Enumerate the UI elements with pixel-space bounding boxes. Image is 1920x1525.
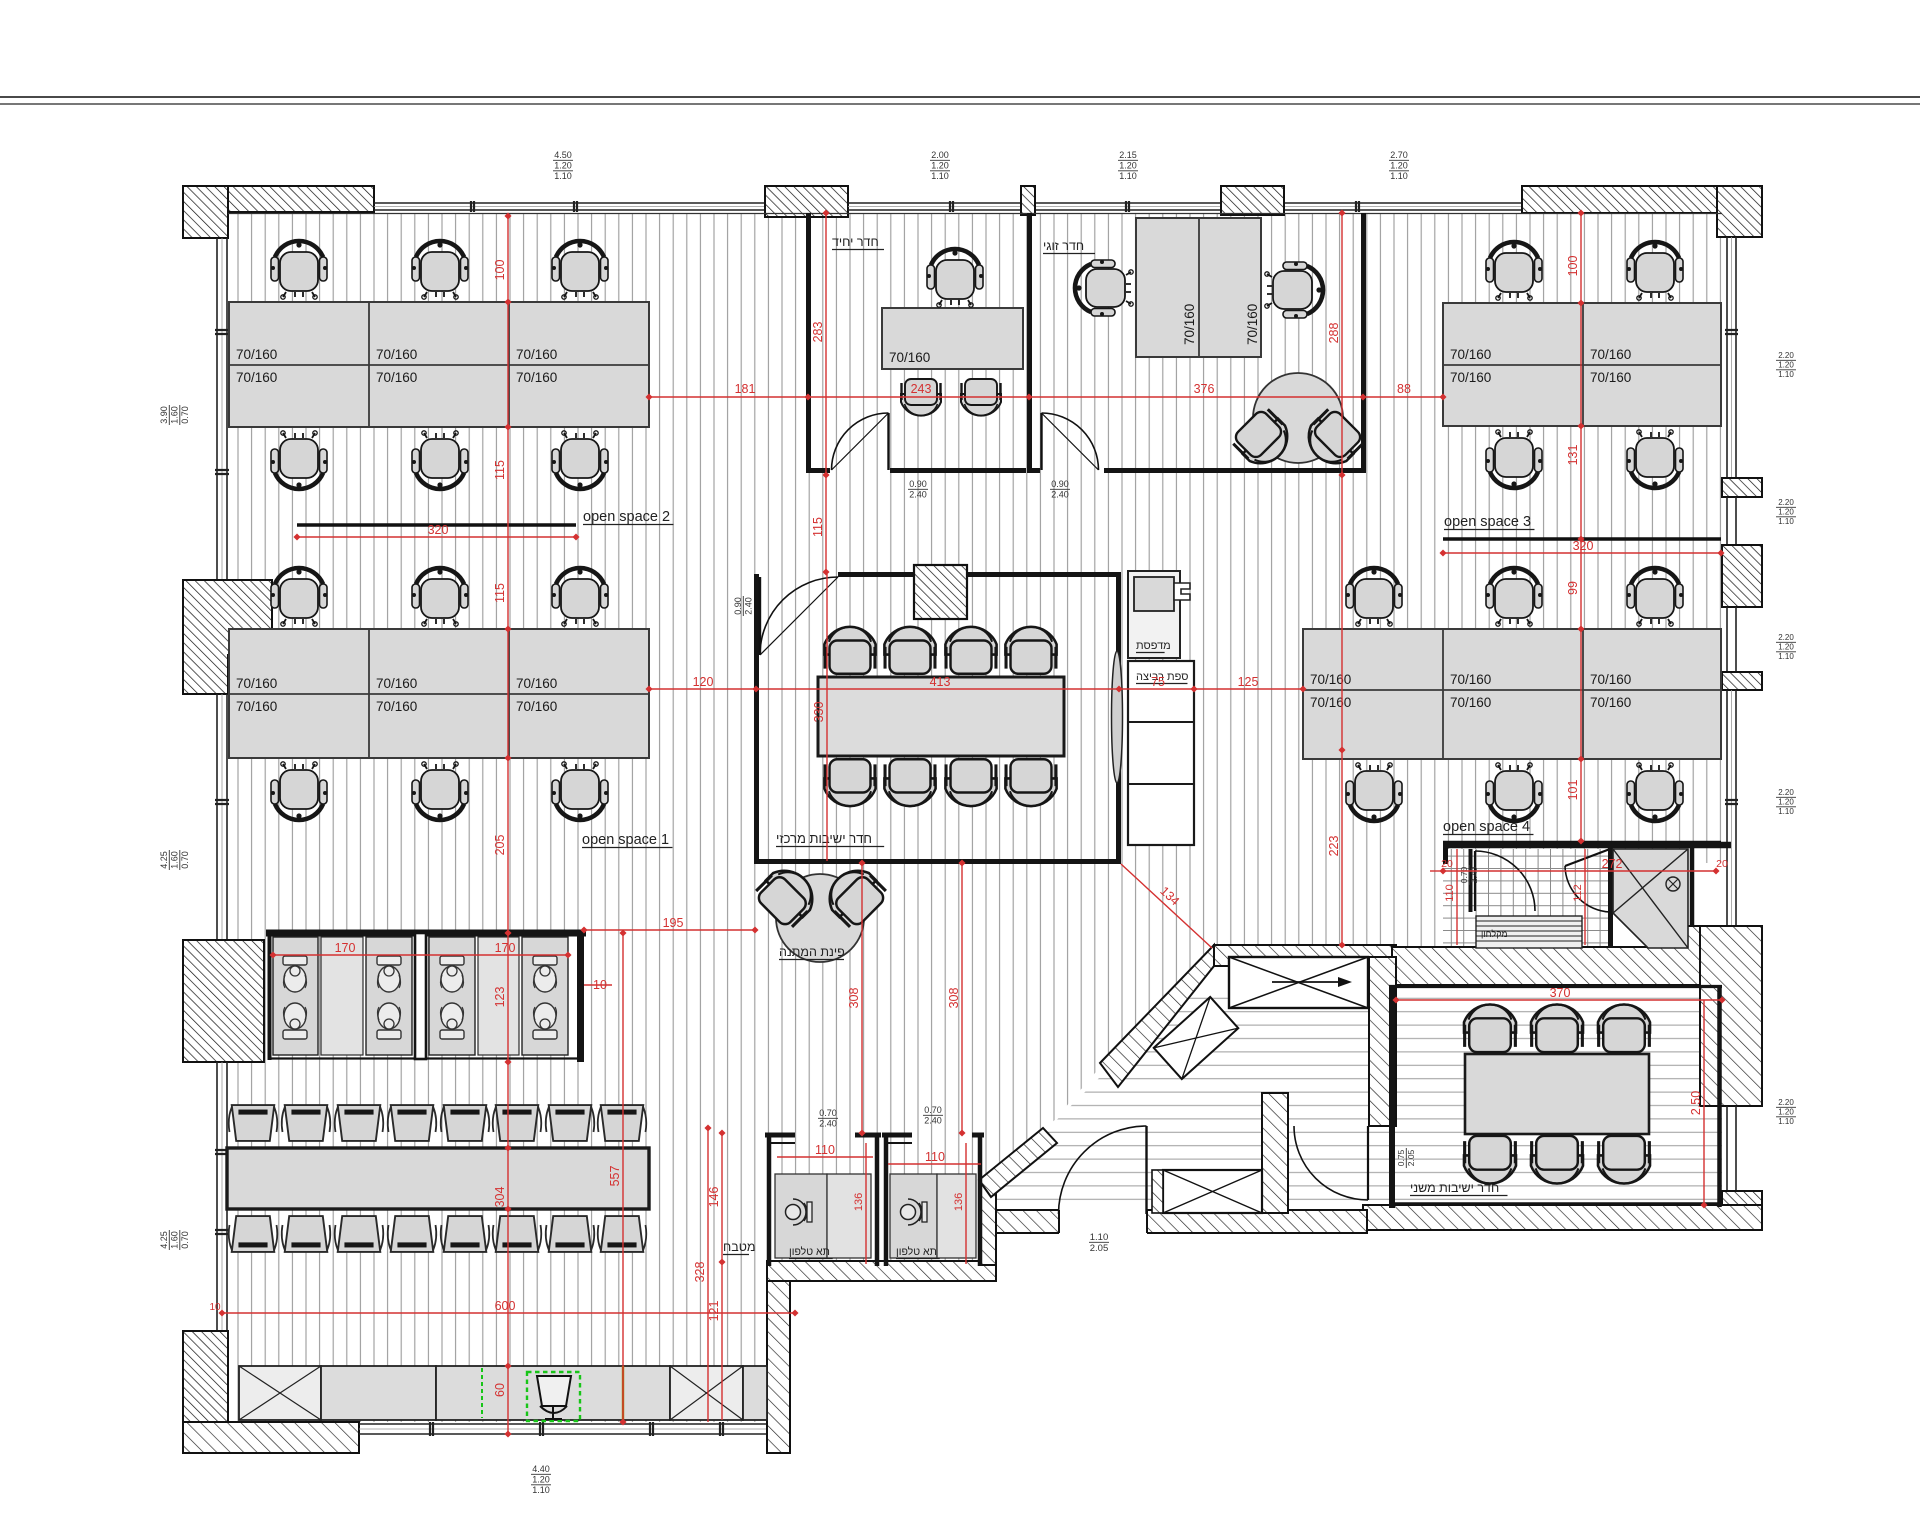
svg-text:125: 125 [1238,675,1259,689]
svg-text:1.20: 1.20 [1778,643,1794,652]
svg-text:170: 170 [335,941,356,955]
svg-text:חדר זוגי: חדר זוגי [1043,239,1084,253]
svg-text:70/160: 70/160 [516,676,557,691]
svg-text:131: 131 [1566,445,1580,466]
svg-text:70/160: 70/160 [1590,347,1631,362]
svg-text:4.40: 4.40 [532,1464,550,1474]
svg-text:2.50: 2.50 [1689,1091,1703,1115]
svg-text:283: 283 [811,322,825,343]
svg-text:1.10: 1.10 [532,1485,550,1495]
svg-text:304: 304 [493,1187,507,1208]
svg-text:מדפסת: מדפסת [1136,640,1171,652]
svg-text:121: 121 [707,1301,721,1322]
svg-text:2.40: 2.40 [1051,490,1069,500]
svg-text:פינת המתנה: פינת המתנה [779,945,845,959]
svg-text:70/160: 70/160 [1450,695,1491,710]
svg-text:70/160: 70/160 [1182,304,1197,345]
svg-text:0.70: 0.70 [180,1231,190,1249]
svg-text:60: 60 [493,1383,507,1397]
svg-text:1.10: 1.10 [1778,652,1794,661]
svg-text:2.40: 2.40 [819,1119,837,1129]
svg-text:10: 10 [593,978,607,992]
svg-text:110: 110 [815,1143,835,1157]
svg-text:מקלחון: מקלחון [1481,929,1508,939]
svg-text:חדר ישיבות מרכזי: חדר ישיבות מרכזי [776,831,872,846]
svg-text:101: 101 [1566,780,1580,801]
svg-text:חדר ישיבות משני: חדר ישיבות משני [1410,1181,1499,1195]
svg-text:4.50: 4.50 [554,150,572,160]
svg-text:99: 99 [1566,581,1580,595]
svg-text:70/160: 70/160 [236,347,277,362]
svg-text:181: 181 [735,382,756,396]
svg-text:1.20: 1.20 [1778,1108,1794,1117]
svg-text:1.10: 1.10 [1119,171,1137,181]
svg-text:75: 75 [1151,675,1165,689]
svg-text:1.10: 1.10 [554,171,572,181]
svg-text:136: 136 [853,1193,865,1211]
svg-text:370: 370 [1550,986,1571,1000]
svg-text:0.75: 0.75 [1396,1149,1406,1166]
svg-text:open space 3: open space 3 [1444,514,1531,530]
svg-text:2.20: 2.20 [1778,351,1794,360]
svg-text:70/160: 70/160 [236,370,277,385]
svg-text:600: 600 [495,1299,516,1313]
svg-text:308: 308 [947,988,961,1009]
svg-text:70/160: 70/160 [236,676,277,691]
svg-text:110: 110 [1444,884,1456,902]
svg-text:110: 110 [925,1150,945,1164]
svg-text:1.20: 1.20 [1778,361,1794,370]
svg-text:2.20: 2.20 [1778,633,1794,642]
svg-text:70/160: 70/160 [889,350,930,365]
svg-text:70/160: 70/160 [376,699,417,714]
svg-text:חדר יחיד: חדר יחיד [832,235,879,249]
svg-text:136: 136 [953,1193,965,1211]
svg-text:2.05: 2.05 [1090,1243,1109,1254]
svg-text:2.40: 2.40 [1469,866,1479,883]
svg-text:1.20: 1.20 [554,161,572,171]
svg-text:0.90: 0.90 [909,479,927,489]
svg-text:413: 413 [930,675,951,689]
svg-text:1.10: 1.10 [1778,370,1794,379]
svg-text:123: 123 [493,987,507,1008]
svg-text:223: 223 [1327,836,1341,857]
svg-text:1.20: 1.20 [532,1475,550,1485]
svg-text:0.70: 0.70 [180,406,190,424]
svg-text:1.20: 1.20 [1119,161,1137,171]
svg-text:115: 115 [811,517,825,537]
svg-text:328: 328 [693,1262,707,1283]
svg-text:2.15: 2.15 [1119,150,1137,160]
svg-text:288: 288 [1327,323,1341,344]
svg-text:70/160: 70/160 [1310,672,1351,687]
svg-text:1.10: 1.10 [1778,517,1794,526]
svg-text:70/160: 70/160 [376,370,417,385]
svg-text:70/160: 70/160 [516,347,557,362]
svg-text:3.90: 3.90 [159,406,169,424]
svg-text:0.90: 0.90 [733,597,743,615]
svg-text:88: 88 [1397,382,1411,396]
svg-text:2.40: 2.40 [924,1116,942,1126]
svg-text:70/160: 70/160 [1450,672,1491,687]
svg-text:open space 1: open space 1 [582,832,669,848]
svg-text:2.40: 2.40 [744,597,754,615]
svg-text:open space 4: open space 4 [1443,819,1530,835]
svg-text:10: 10 [209,1302,221,1313]
svg-text:2.20: 2.20 [1778,1098,1794,1107]
svg-text:320: 320 [428,523,449,537]
svg-text:4.25: 4.25 [159,1231,169,1249]
svg-text:open space 2: open space 2 [583,509,670,525]
svg-text:146: 146 [707,1187,721,1208]
svg-text:1.20: 1.20 [1778,508,1794,517]
svg-text:0.70: 0.70 [924,1105,942,1115]
svg-text:70/160: 70/160 [1590,672,1631,687]
svg-text:70/160: 70/160 [1450,347,1491,362]
svg-text:70/160: 70/160 [1590,695,1631,710]
svg-text:1.20: 1.20 [1390,161,1408,171]
svg-text:1.20: 1.20 [931,161,949,171]
svg-text:100: 100 [1566,256,1580,277]
svg-text:0.70: 0.70 [180,851,190,869]
svg-text:70/160: 70/160 [1310,695,1351,710]
svg-text:1.10: 1.10 [1390,171,1408,181]
svg-text:376: 376 [1194,382,1215,396]
svg-text:1.10: 1.10 [931,171,949,181]
svg-text:1.60: 1.60 [170,406,180,424]
svg-text:170: 170 [495,941,516,955]
svg-text:20: 20 [1716,858,1728,870]
svg-text:תא טלפון: תא טלפון [896,1246,937,1258]
svg-text:2.20: 2.20 [1778,788,1794,797]
svg-text:115: 115 [493,583,507,603]
svg-text:1.60: 1.60 [170,1231,180,1249]
svg-text:70/160: 70/160 [516,699,557,714]
svg-text:115: 115 [493,460,507,480]
svg-text:2.20: 2.20 [1778,498,1794,507]
svg-text:557: 557 [608,1166,622,1187]
svg-text:2.70: 2.70 [1390,150,1408,160]
svg-text:0.90: 0.90 [1051,479,1069,489]
svg-text:320: 320 [1573,539,1594,553]
svg-text:70/160: 70/160 [1245,304,1260,345]
svg-text:243: 243 [911,382,932,396]
svg-text:272: 272 [1602,857,1623,871]
svg-text:1.60: 1.60 [170,851,180,869]
svg-text:70/160: 70/160 [376,347,417,362]
svg-text:1.10: 1.10 [1778,807,1794,816]
svg-text:0.70: 0.70 [1459,866,1469,883]
svg-text:120: 120 [693,675,714,689]
svg-text:תא טלפון: תא טלפון [789,1246,830,1258]
svg-text:70/160: 70/160 [1450,370,1491,385]
svg-text:70/160: 70/160 [1590,370,1631,385]
svg-text:308: 308 [847,988,861,1009]
svg-text:20: 20 [1441,858,1453,870]
svg-text:205: 205 [493,835,507,856]
svg-text:70/160: 70/160 [516,370,557,385]
svg-text:2.05: 2.05 [1406,1149,1416,1166]
svg-text:330: 330 [812,702,826,723]
svg-text:100: 100 [493,260,507,281]
svg-text:0.70: 0.70 [819,1108,837,1118]
svg-text:1.20: 1.20 [1778,798,1794,807]
svg-text:1.10: 1.10 [1778,1117,1794,1126]
svg-text:70/160: 70/160 [376,676,417,691]
svg-text:2.40: 2.40 [909,490,927,500]
svg-text:4.25: 4.25 [159,851,169,869]
svg-text:2.00: 2.00 [931,150,949,160]
svg-text:מטבח: מטבח [723,1240,755,1254]
svg-text:1.10: 1.10 [1090,1232,1109,1243]
svg-text:195: 195 [663,916,684,930]
svg-text:112: 112 [1572,884,1584,902]
svg-text:70/160: 70/160 [236,699,277,714]
